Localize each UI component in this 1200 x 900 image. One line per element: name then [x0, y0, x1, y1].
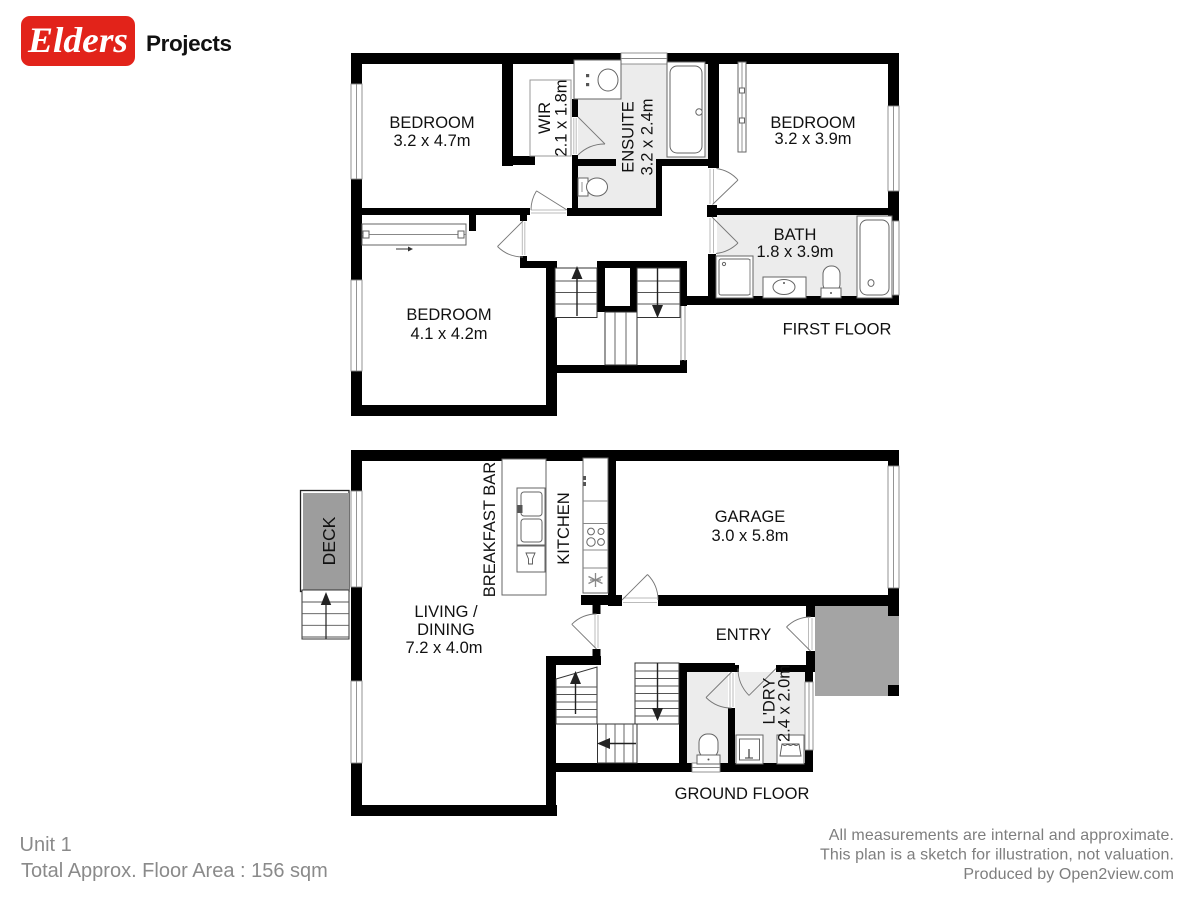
svg-text:2.1 x 1.8m: 2.1 x 1.8m — [553, 79, 571, 156]
svg-text:4.1 x 4.2m: 4.1 x 4.2m — [410, 325, 487, 343]
svg-text:Total Approx. Floor Area : 156: Total Approx. Floor Area : 156 sqm — [21, 860, 328, 882]
svg-text:GARAGE: GARAGE — [715, 508, 786, 526]
svg-text:BEDROOM: BEDROOM — [406, 306, 491, 324]
svg-text:DECK: DECK — [319, 516, 339, 565]
svg-text:ENSUITE: ENSUITE — [620, 101, 638, 173]
svg-text:Projects: Projects — [146, 31, 232, 56]
svg-text:Produced by Open2view.com: Produced by Open2view.com — [963, 866, 1174, 883]
svg-text:LIVING /: LIVING / — [414, 603, 478, 621]
svg-text:KITCHEN: KITCHEN — [555, 492, 573, 564]
svg-text:This plan is a sketch for illu: This plan is a sketch for illustration, … — [820, 847, 1174, 864]
svg-text:DINING: DINING — [417, 621, 475, 639]
svg-text:7.2 x 4.0m: 7.2 x 4.0m — [405, 639, 482, 657]
svg-text:1.8 x 3.9m: 1.8 x 3.9m — [756, 243, 833, 261]
svg-text:3.2 x 2.4m: 3.2 x 2.4m — [639, 98, 657, 175]
svg-text:BREAKFAST BAR: BREAKFAST BAR — [481, 462, 499, 597]
svg-text:Unit 1: Unit 1 — [20, 834, 72, 856]
svg-text:3.2 x 3.9m: 3.2 x 3.9m — [774, 130, 851, 148]
svg-text:2.4 x 2.0m: 2.4 x 2.0m — [776, 665, 794, 742]
svg-text:GROUND FLOOR: GROUND FLOOR — [675, 785, 810, 803]
svg-text:3.0 x 5.8m: 3.0 x 5.8m — [711, 527, 788, 545]
svg-text:Elders: Elders — [27, 20, 128, 60]
svg-text:BATH: BATH — [774, 226, 817, 244]
svg-text:All measurements are internal: All measurements are internal and approx… — [829, 827, 1174, 844]
svg-text:BEDROOM: BEDROOM — [389, 114, 474, 132]
svg-text:3.2 x 4.7m: 3.2 x 4.7m — [393, 132, 470, 150]
svg-text:WIR: WIR — [536, 102, 554, 134]
svg-text:ENTRY: ENTRY — [716, 626, 772, 644]
svg-text:FIRST FLOOR: FIRST FLOOR — [783, 321, 892, 339]
